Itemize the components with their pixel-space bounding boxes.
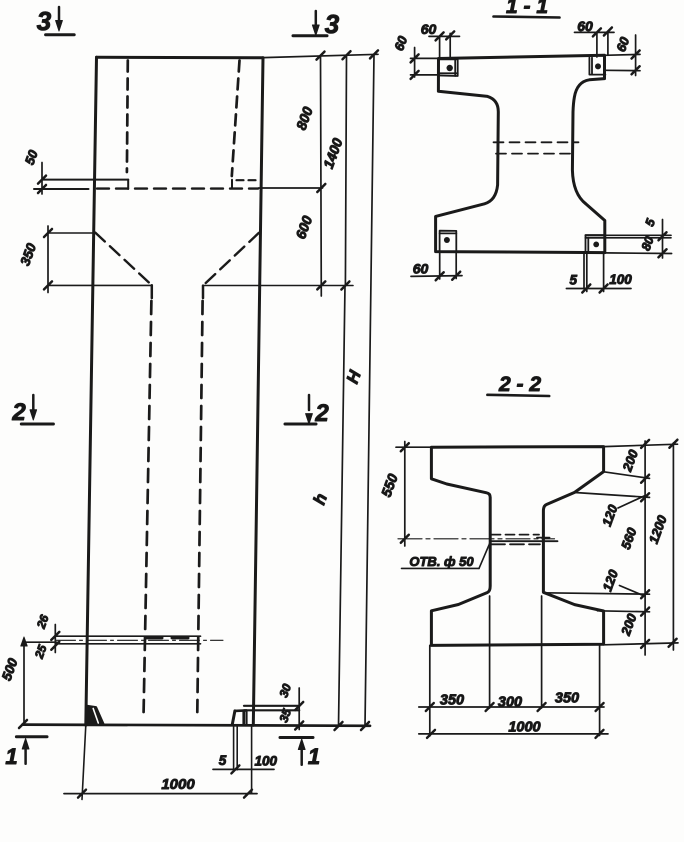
svg-text:50: 50 [22, 147, 41, 166]
svg-text:2: 2 [11, 399, 26, 426]
svg-text:25: 25 [32, 643, 50, 662]
svg-text:5: 5 [219, 753, 227, 768]
svg-text:60: 60 [391, 33, 410, 52]
svg-text:5: 5 [569, 273, 577, 288]
svg-text:5: 5 [642, 216, 658, 228]
svg-text:100: 100 [255, 754, 278, 769]
svg-text:h: h [310, 491, 331, 507]
svg-text:560: 560 [618, 525, 640, 551]
svg-text:350: 350 [555, 691, 579, 707]
svg-text:120: 120 [600, 567, 622, 593]
svg-text:350: 350 [17, 241, 39, 268]
svg-text:1: 1 [5, 744, 17, 769]
svg-text:1000: 1000 [161, 776, 195, 793]
svg-text:2 - 2: 2 - 2 [498, 373, 541, 396]
svg-text:350: 350 [440, 693, 464, 709]
svg-text:500: 500 [0, 656, 21, 683]
svg-text:ОТВ. ф 50: ОТВ. ф 50 [409, 554, 474, 569]
svg-text:600: 600 [292, 213, 315, 241]
svg-text:H: H [343, 367, 365, 386]
svg-text:800: 800 [293, 104, 316, 132]
svg-text:60: 60 [421, 21, 437, 37]
svg-text:100: 100 [609, 272, 632, 287]
svg-text:60: 60 [577, 18, 593, 34]
svg-text:1200: 1200 [646, 513, 670, 546]
svg-text:1000: 1000 [508, 720, 540, 736]
svg-text:300: 300 [498, 695, 522, 711]
svg-text:3: 3 [37, 6, 52, 36]
svg-text:1: 1 [308, 744, 320, 769]
svg-text:30: 30 [276, 682, 294, 700]
svg-text:1 - 1: 1 - 1 [506, 0, 548, 18]
svg-text:200: 200 [618, 611, 640, 638]
svg-text:550: 550 [378, 471, 401, 499]
svg-text:120: 120 [599, 502, 621, 528]
svg-text:60: 60 [613, 34, 632, 53]
svg-text:1400: 1400 [320, 136, 346, 171]
svg-text:26: 26 [34, 613, 52, 632]
svg-text:60: 60 [413, 261, 429, 277]
svg-text:200: 200 [619, 447, 641, 474]
